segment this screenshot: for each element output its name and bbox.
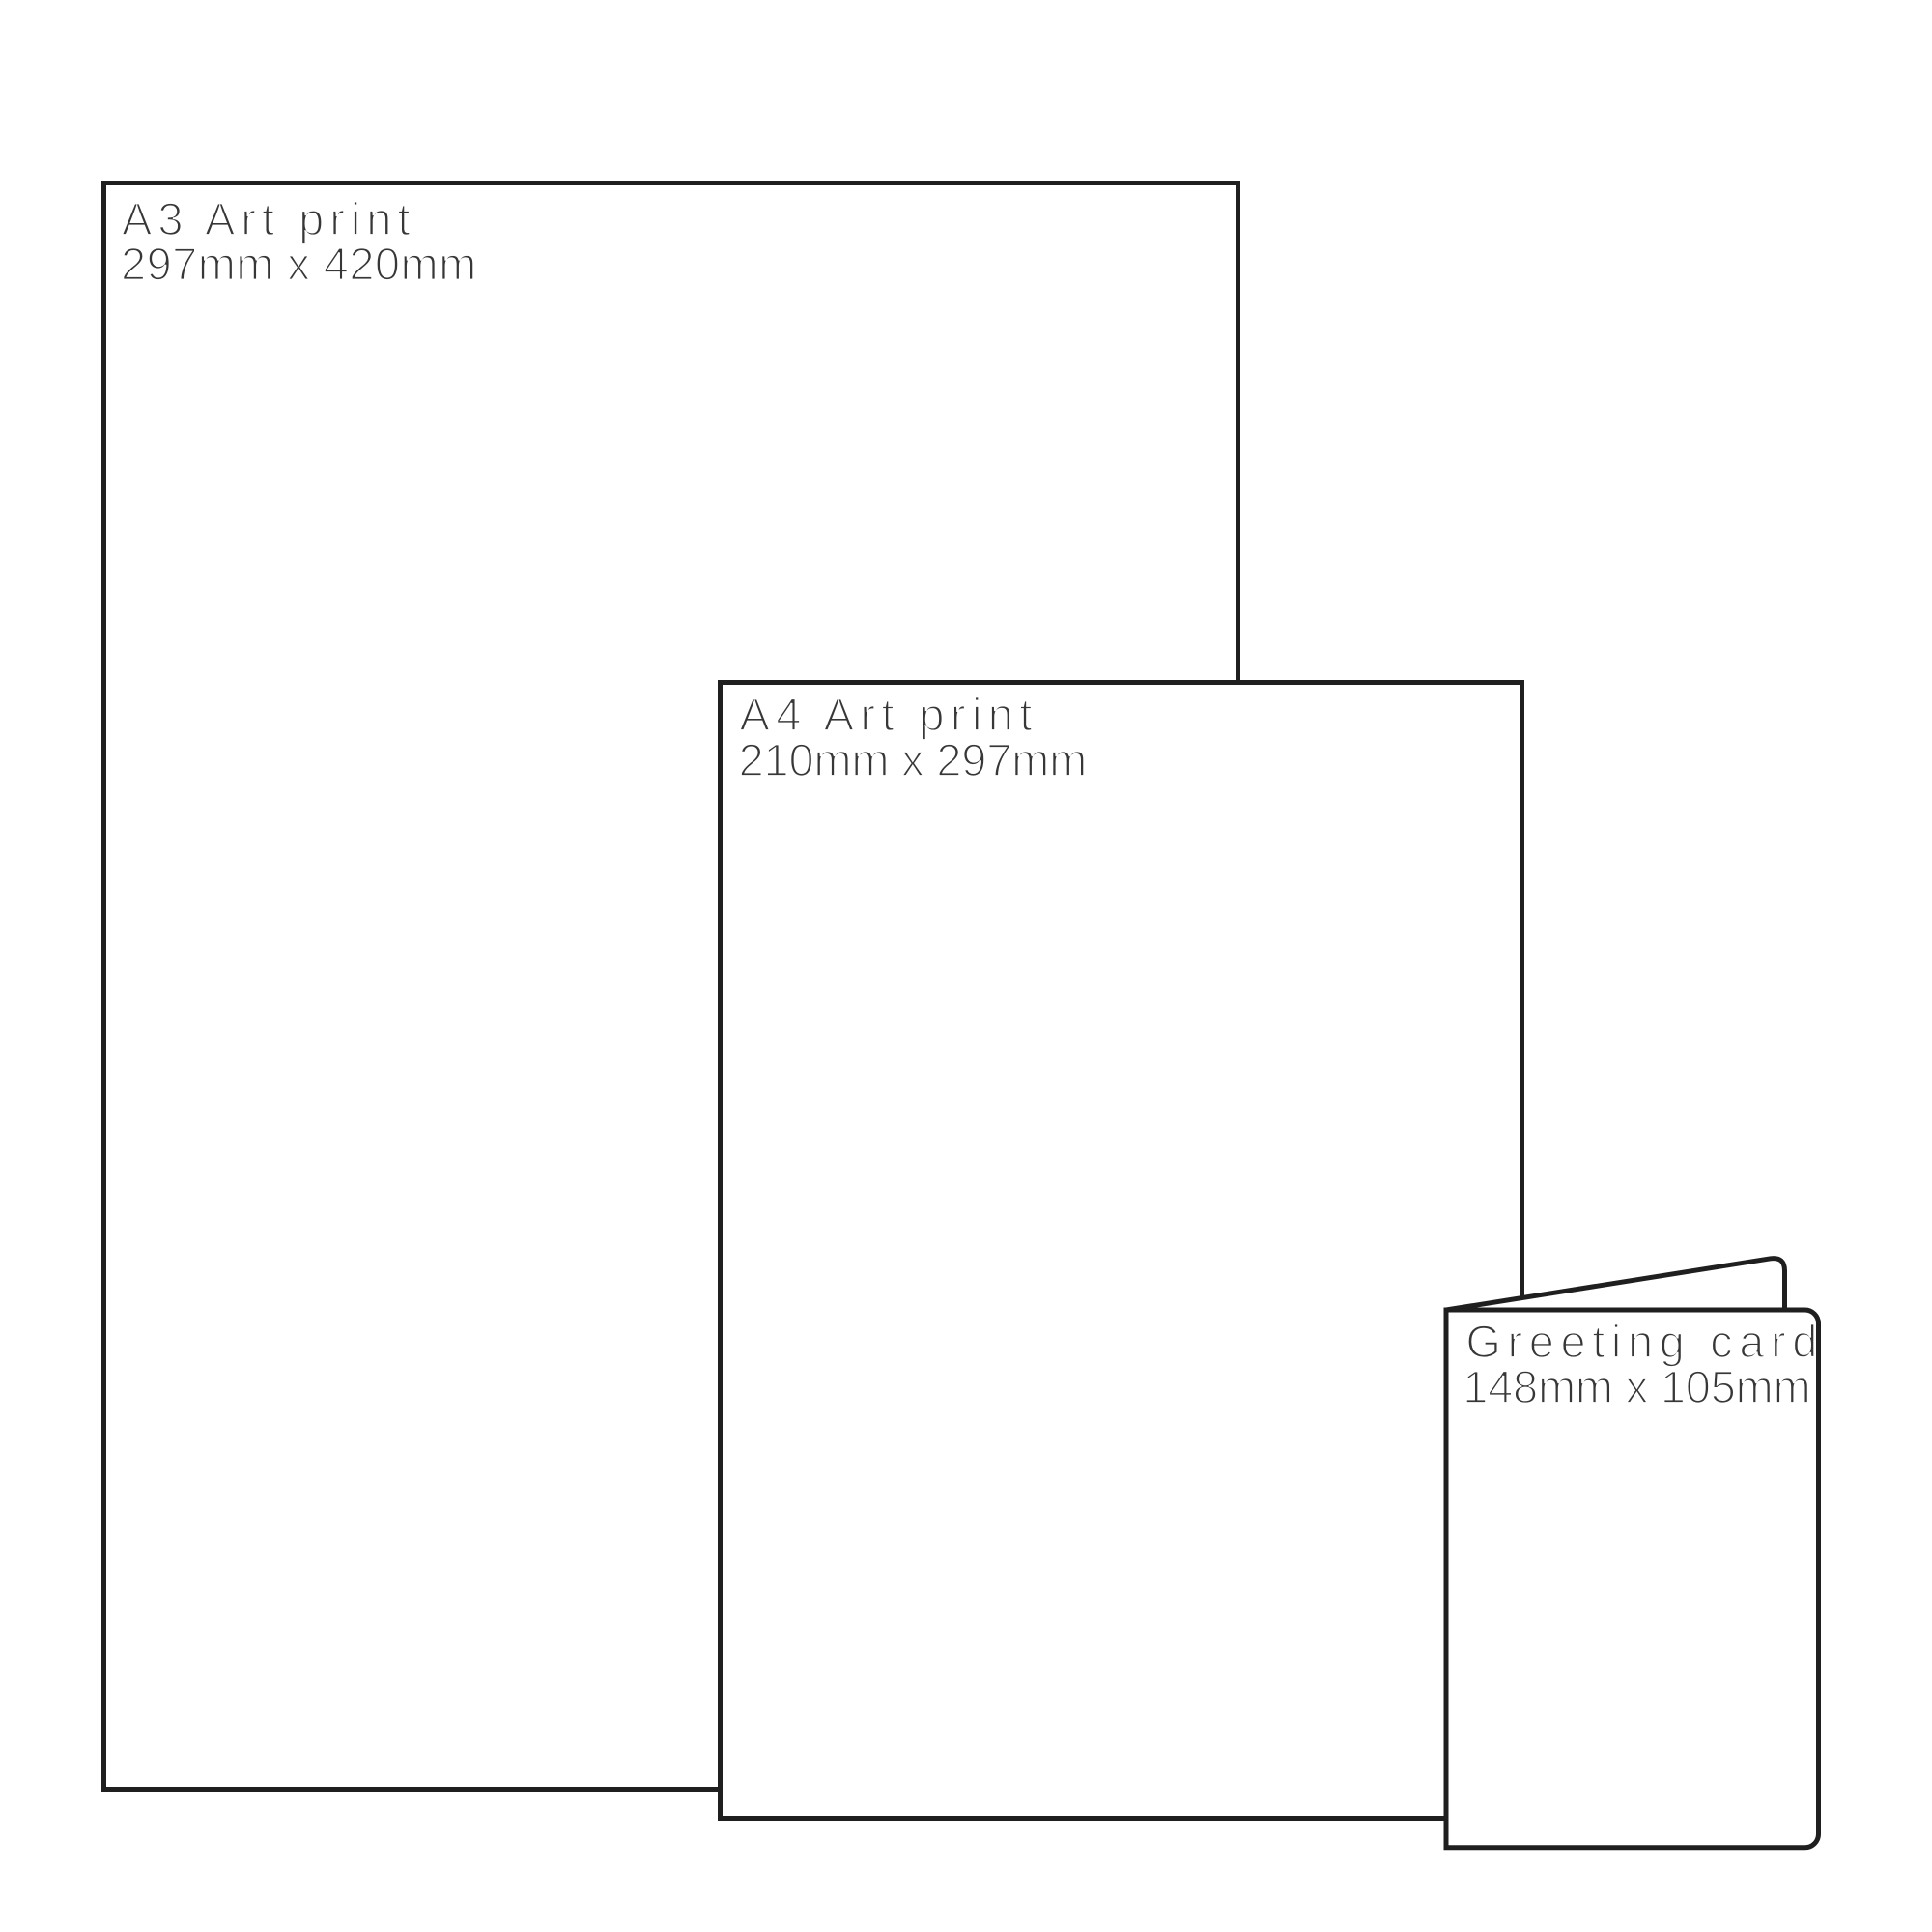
svg-text:210mm x 297mm: 210mm x 297mm xyxy=(739,734,1087,785)
svg-text:Greeting card: Greeting card xyxy=(1465,1316,1824,1367)
svg-text:A3 Art print: A3 Art print xyxy=(122,193,416,244)
svg-text:A4 Art print: A4 Art print xyxy=(740,689,1038,740)
svg-text:148mm x 105mm: 148mm x 105mm xyxy=(1463,1361,1810,1412)
svg-text:297mm x 420mm: 297mm x 420mm xyxy=(121,239,477,290)
